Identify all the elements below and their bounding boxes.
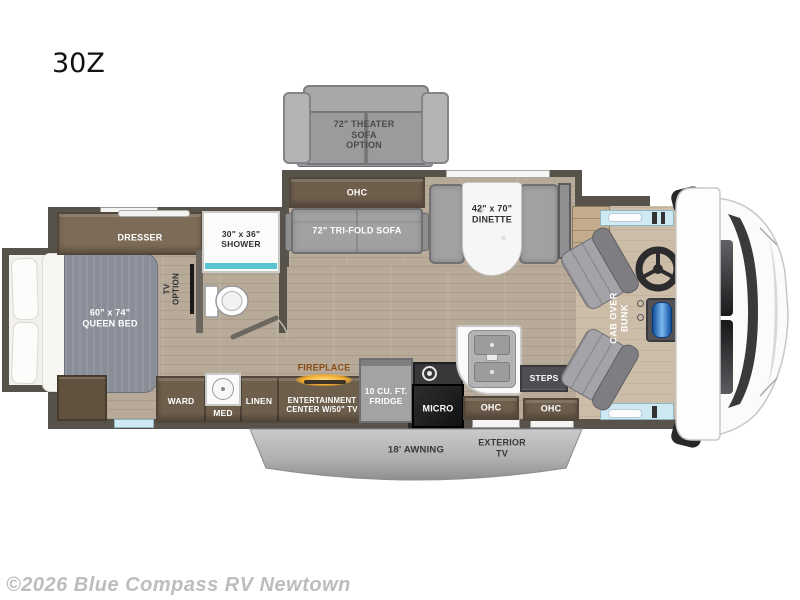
trifold-sofa (291, 208, 423, 254)
ohc-entry (523, 398, 579, 421)
console-knob-2 (637, 314, 644, 321)
dinette-bench-right (519, 184, 559, 264)
fireplace-hearth (304, 380, 346, 384)
console-knob-1 (637, 300, 644, 307)
queen-bed-mattress (64, 253, 158, 393)
med-sink-drain (221, 387, 225, 391)
dresser (57, 212, 203, 255)
wall-top-cab (574, 196, 650, 206)
awning (248, 428, 584, 486)
bed-pillow-top (11, 258, 39, 321)
cabinet-divider-3 (277, 378, 279, 421)
sink-drain-bottom (490, 370, 494, 374)
theater-sofa-seats (305, 111, 427, 165)
dinette-table (462, 182, 522, 276)
theater-sofa-option: 72" THEATER SOFA OPTION (283, 83, 447, 169)
ohc-sofa (289, 177, 425, 208)
tv-option-tv (190, 264, 194, 314)
rv-floorplan: 30Z 72" THEATER SOFA OPTION 60" x 74" QU… (0, 0, 800, 600)
fridge (359, 358, 413, 423)
theater-sofa-arm-right (421, 92, 449, 164)
cooktop-burner-dot (427, 371, 432, 376)
microwave (412, 384, 464, 428)
window-kitchen-bottom (472, 419, 520, 428)
driver-door-inner (608, 213, 642, 222)
shower-accent (205, 263, 277, 269)
dinette-bench-left (429, 184, 465, 264)
cab-front (664, 150, 800, 466)
entry-door-inner (608, 409, 642, 418)
driver-door-handle (652, 212, 657, 224)
window-bedroom-bottom (114, 419, 154, 428)
theater-sofa-arm-left (283, 92, 311, 164)
bath-door-swing (230, 312, 292, 342)
sink-faucet (486, 354, 498, 361)
watermark: ©2026 Blue Compass RV Newtown (6, 575, 351, 595)
bed-pillow-bottom (11, 322, 39, 385)
sink-drain-top (490, 343, 494, 347)
bed-nightstand (57, 375, 107, 421)
dresser-slide-indicator (118, 210, 190, 217)
entry-door-handle (652, 406, 657, 418)
window-dinette-top (446, 170, 550, 178)
cab-over-band (676, 188, 720, 440)
model-label: 30Z (52, 50, 105, 77)
ohc-kitchen (463, 396, 519, 420)
